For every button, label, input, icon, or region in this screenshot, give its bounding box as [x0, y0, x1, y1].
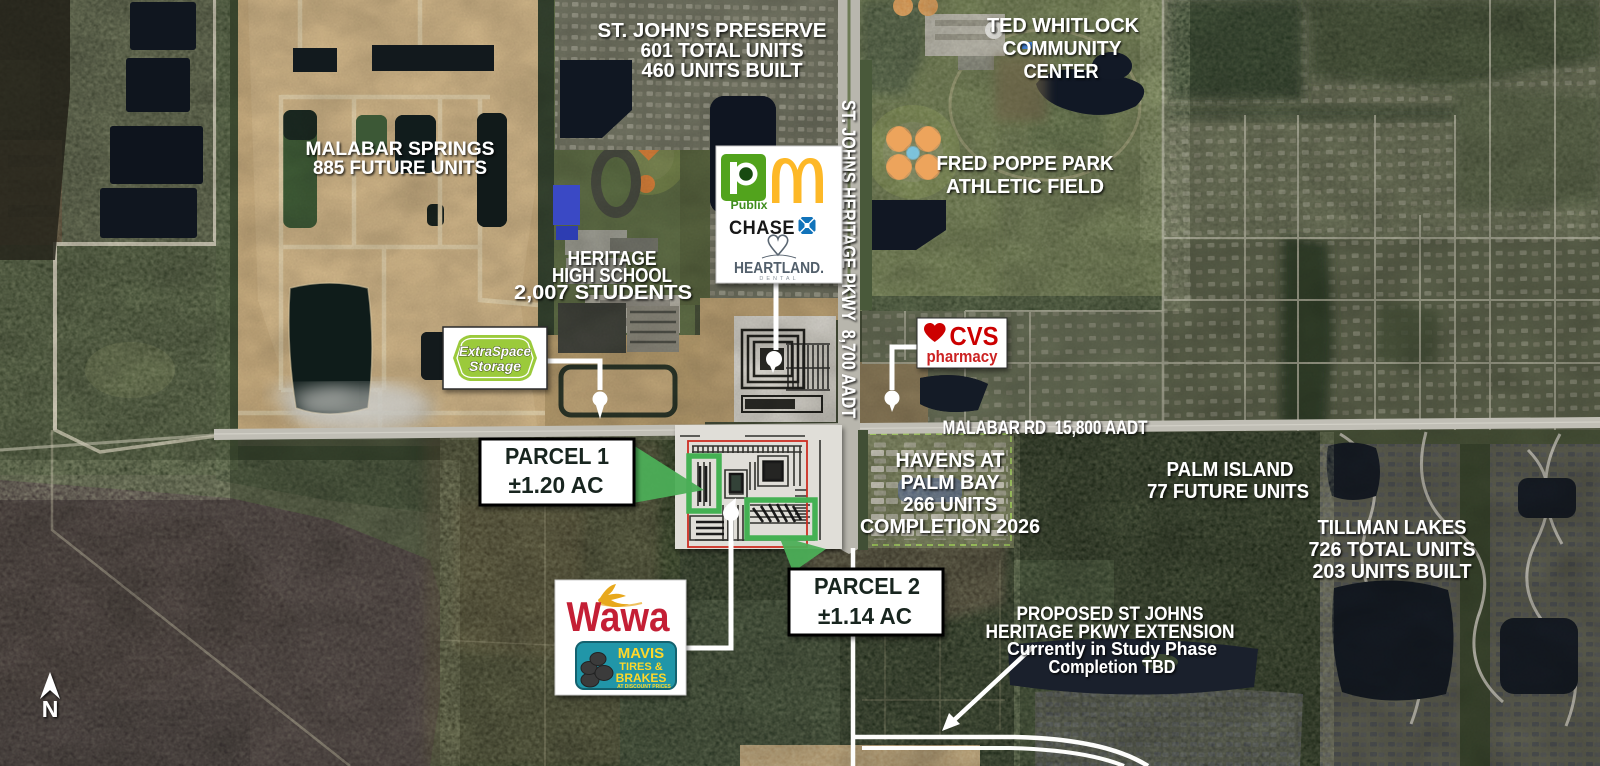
svg-text:BRAKES: BRAKES — [616, 671, 667, 685]
svg-text:Storage: Storage — [469, 359, 522, 374]
svg-text:HAVENS AT: HAVENS AT — [896, 449, 1005, 472]
svg-text:CVS: CVS — [950, 321, 999, 351]
svg-text:±1.14 AC: ±1.14 AC — [818, 603, 912, 629]
svg-text:PARCEL 2: PARCEL 2 — [814, 573, 920, 599]
svg-text:MALABAR RD 15,800 AADT: MALABAR RD 15,800 AADT — [943, 417, 1148, 439]
svg-text:TILLMAN LAKES: TILLMAN LAKES — [1318, 516, 1467, 539]
svg-text:Wawa: Wawa — [567, 593, 671, 640]
svg-text:±1.20 AC: ±1.20 AC — [509, 472, 604, 498]
svg-text:FRED POPPE PARK: FRED POPPE PARK — [937, 152, 1114, 175]
svg-text:460 UNITS BUILT: 460 UNITS BUILT — [642, 59, 803, 82]
svg-text:Completion TBD: Completion TBD — [1049, 657, 1176, 677]
svg-text:COMPLETION 2026: COMPLETION 2026 — [860, 515, 1040, 538]
svg-text:CENTER: CENTER — [1024, 60, 1099, 83]
svg-text:DENTAL: DENTAL — [759, 276, 798, 282]
svg-text:PALM ISLAND: PALM ISLAND — [1167, 458, 1294, 481]
svg-text:ATHLETIC FIELD: ATHLETIC FIELD — [946, 175, 1104, 198]
svg-text:N: N — [42, 696, 59, 722]
svg-text:ExtraSpace: ExtraSpace — [459, 344, 531, 359]
svg-text:pharmacy: pharmacy — [927, 348, 999, 366]
svg-text:COMMUNITY: COMMUNITY — [1003, 37, 1122, 60]
svg-text:AT DISCOUNT PRICES: AT DISCOUNT PRICES — [617, 684, 671, 690]
svg-text:MAVIS: MAVIS — [618, 645, 664, 662]
svg-text:HEARTLAND.: HEARTLAND. — [734, 260, 824, 277]
svg-text:Currently in Study Phase: Currently in Study Phase — [1007, 639, 1217, 659]
svg-text:TED WHITLOCK: TED WHITLOCK — [987, 14, 1139, 37]
svg-text:726 TOTAL UNITS: 726 TOTAL UNITS — [1309, 538, 1476, 561]
svg-text:2,007 STUDENTS: 2,007 STUDENTS — [514, 281, 692, 304]
svg-text:77 FUTURE UNITS: 77 FUTURE UNITS — [1147, 480, 1309, 503]
svg-text:Publix: Publix — [731, 200, 769, 212]
svg-text:PARCEL 1: PARCEL 1 — [505, 443, 609, 469]
svg-text:266 UNITS: 266 UNITS — [903, 493, 997, 516]
svg-text:203 UNITS BUILT: 203 UNITS BUILT — [1313, 560, 1472, 583]
svg-text:885 FUTURE UNITS: 885 FUTURE UNITS — [313, 157, 487, 179]
svg-text:PALM BAY: PALM BAY — [901, 471, 1000, 494]
